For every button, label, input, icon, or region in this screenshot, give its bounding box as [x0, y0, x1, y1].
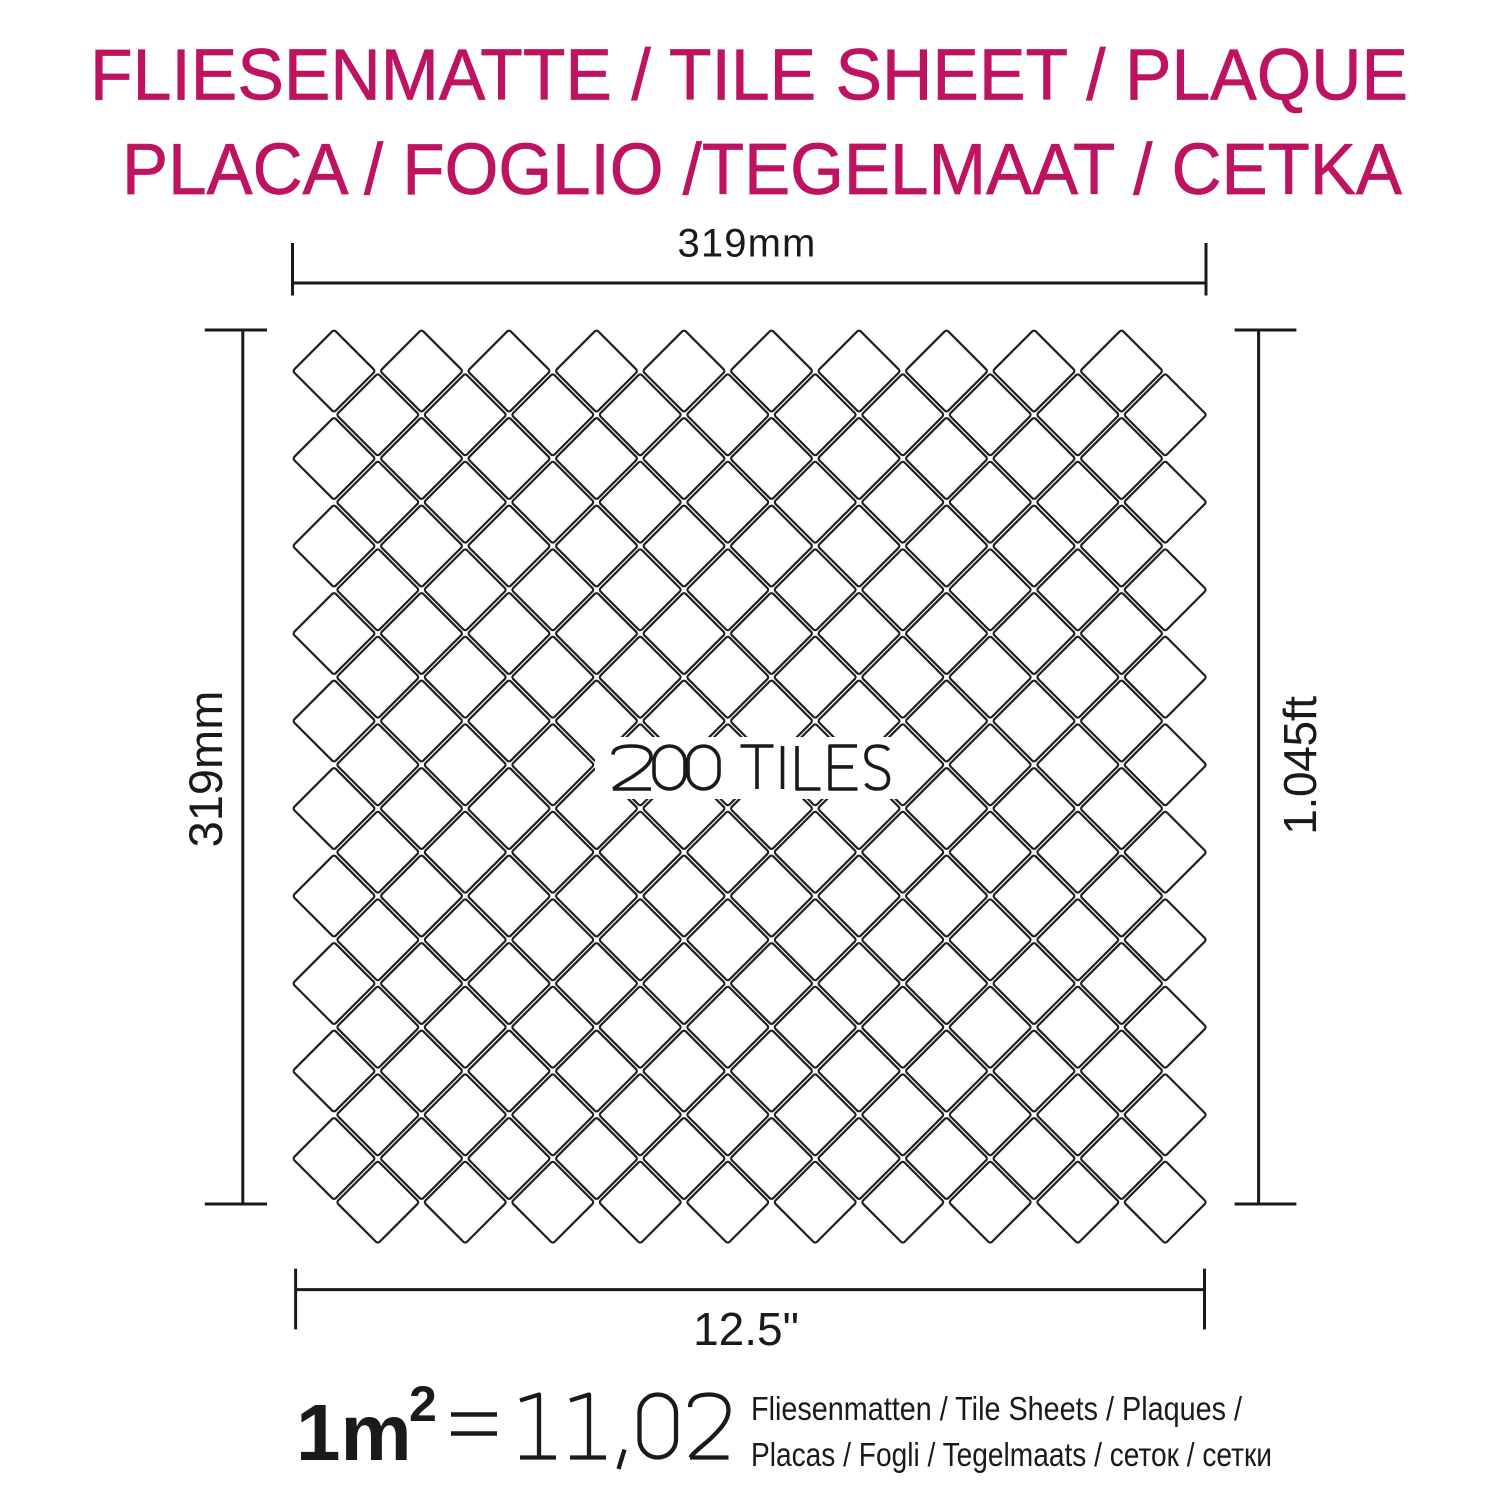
svg-text:PLACA / FOGLIO /TEGELMAAT / CE: PLACA / FOGLIO /TEGELMAAT / CETKA — [122, 130, 1402, 210]
svg-text:1m: 1m — [296, 1388, 412, 1477]
svg-text:Fliesenmatten / Tile Sheets /: Fliesenmatten / Tile Sheets / Plaques / — [751, 1390, 1243, 1427]
svg-text:Placas / Fogli / Tegelmaats /: Placas / Fogli / Tegelmaats / сеток / се… — [751, 1436, 1272, 1473]
svg-text:2: 2 — [409, 1376, 437, 1432]
svg-text:FLIESENMATTE / TILE SHEET / PL: FLIESENMATTE / TILE SHEET / PLAQUE — [90, 36, 1408, 116]
svg-text:12.5": 12.5" — [693, 1303, 799, 1355]
svg-text:1.045ft: 1.045ft — [1274, 696, 1326, 835]
svg-text:319mm: 319mm — [179, 691, 232, 848]
svg-text:319mm: 319mm — [678, 222, 817, 266]
